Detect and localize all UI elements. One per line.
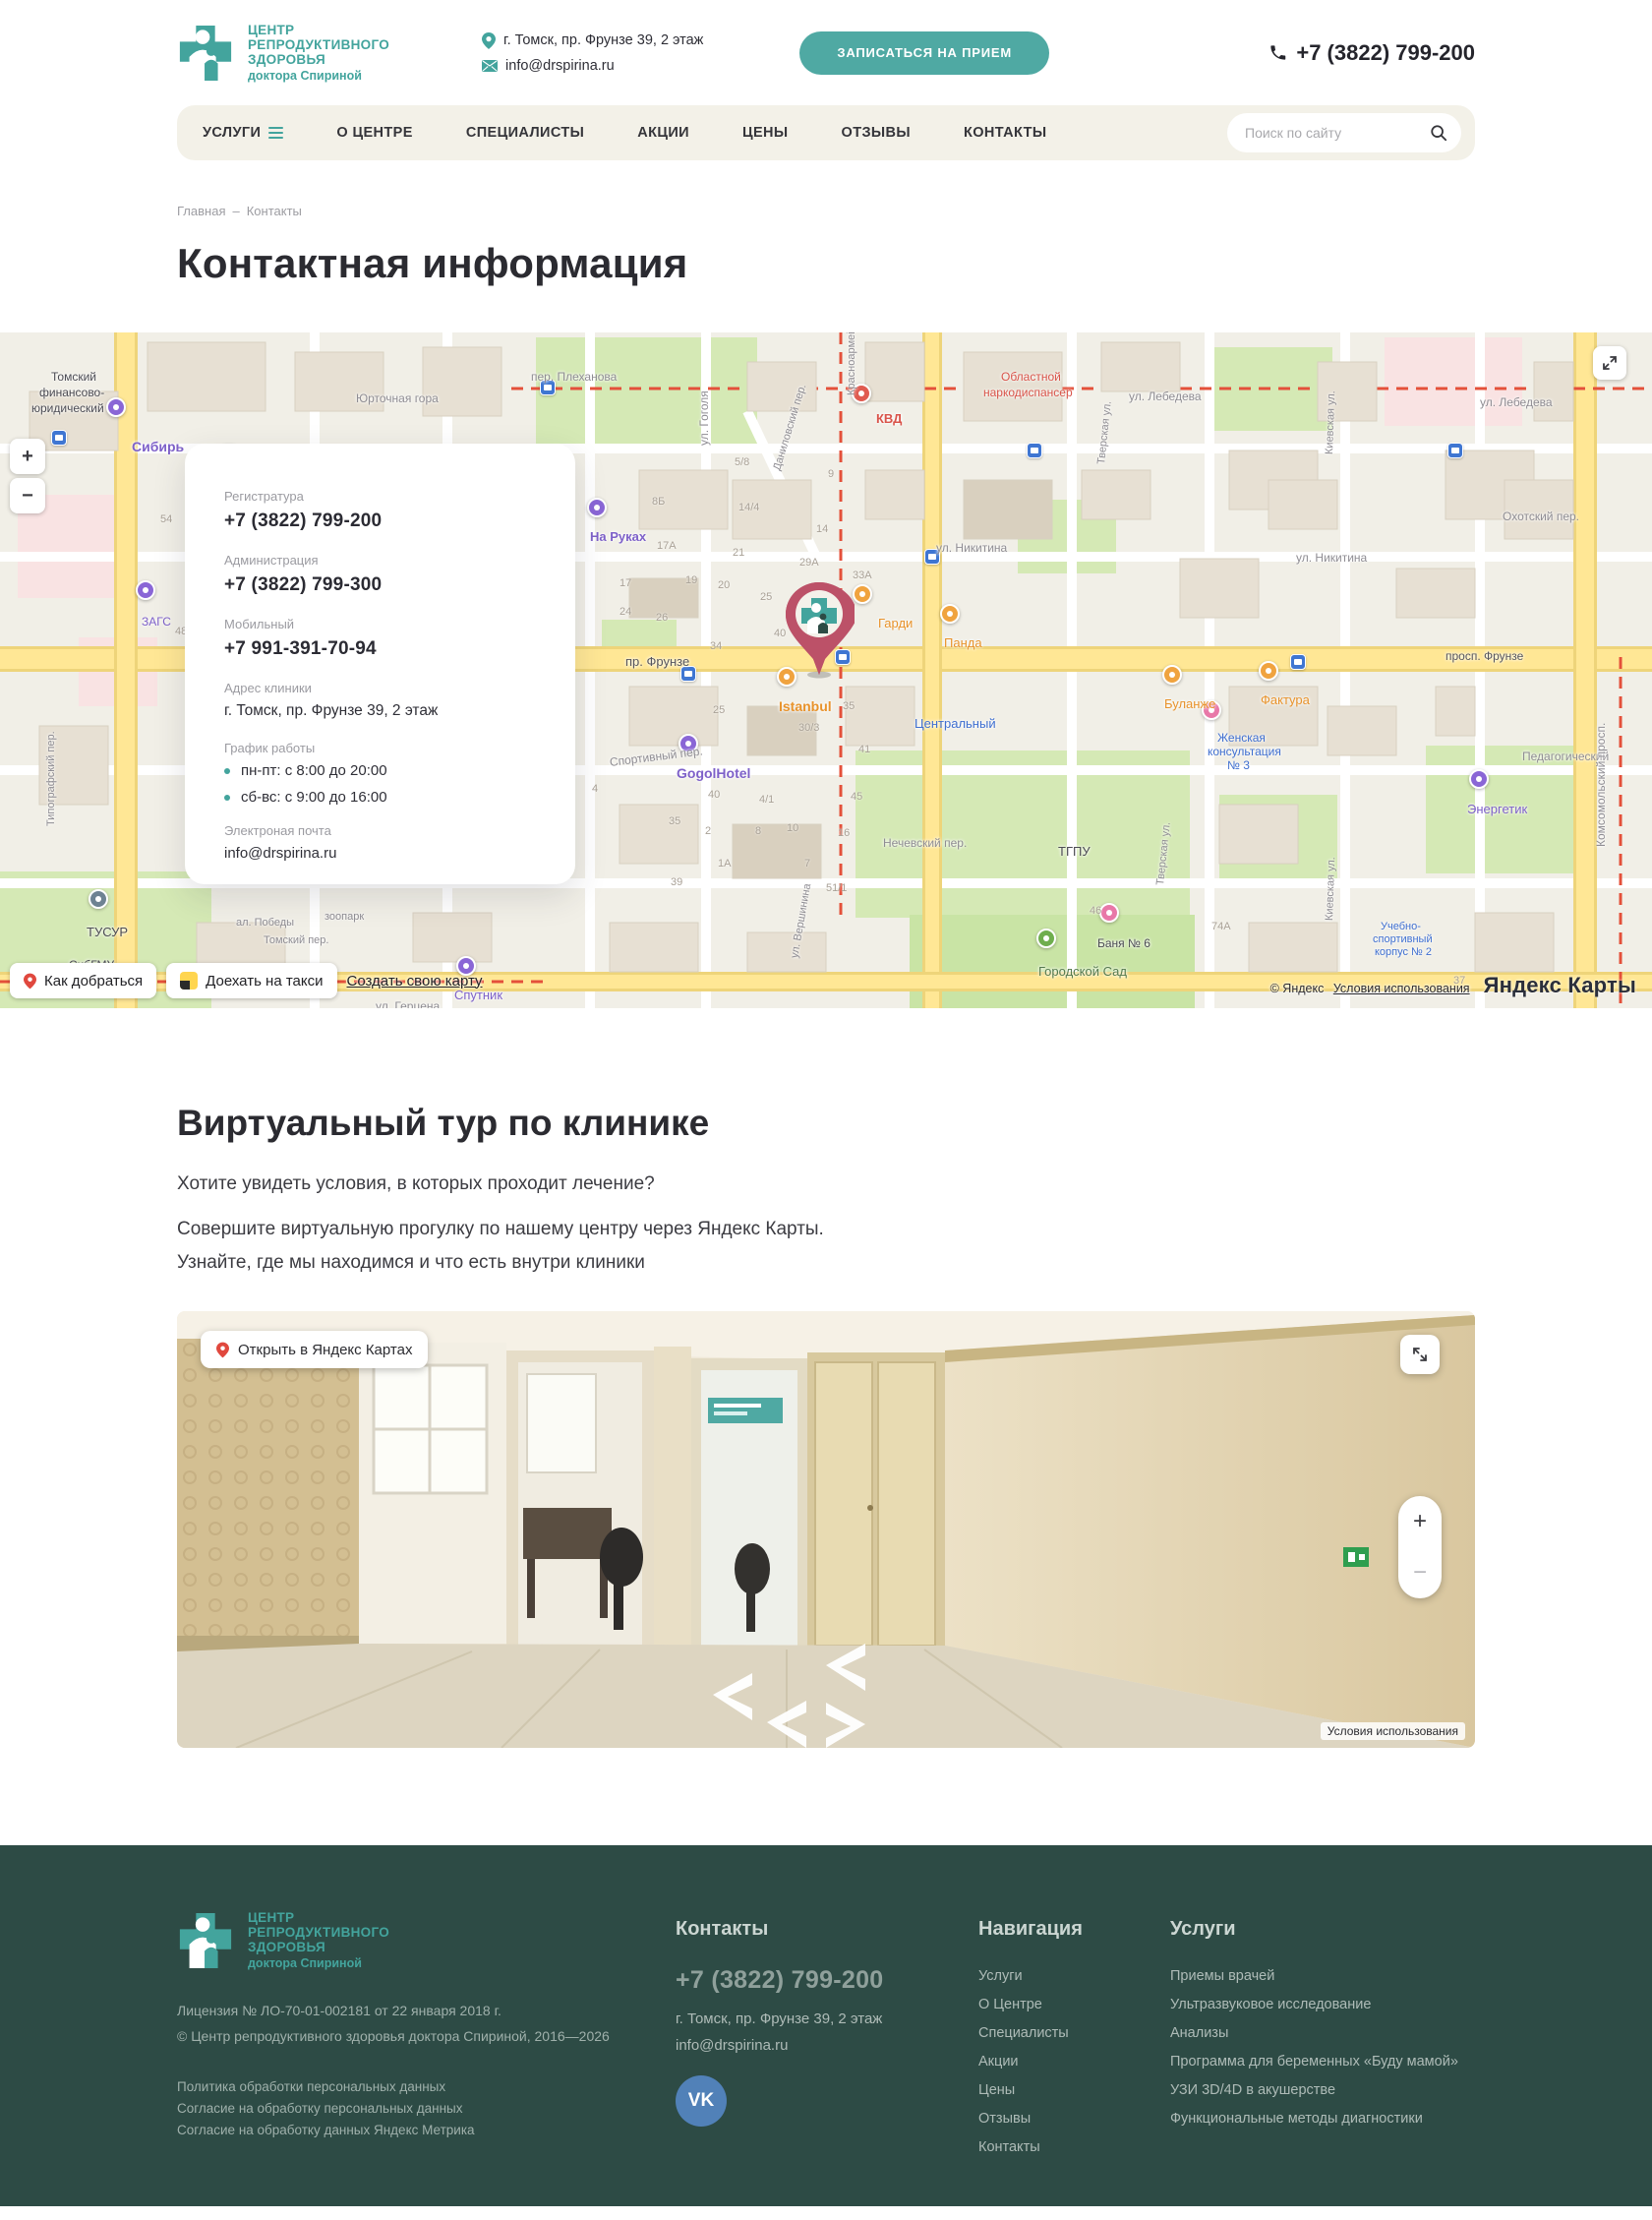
panorama-image — [177, 1311, 1475, 1748]
create-map-link[interactable]: Создать свою карту — [347, 973, 483, 990]
house-number-label: 26 — [656, 612, 668, 624]
nav-item[interactable]: СПЕЦИАЛИСТЫ — [466, 125, 584, 141]
house-number-label: 7 — [804, 858, 810, 870]
house-number-label: 40 — [708, 789, 720, 801]
footer-nav-link[interactable]: О Центре — [978, 1995, 1155, 2014]
logo-tagline: доктора Спириной — [248, 69, 389, 84]
house-number-label: 35 — [843, 700, 855, 712]
clinic-address-value: г. Томск, пр. Фрунзе 39, 2 этаж — [224, 702, 536, 720]
footer-services-list: Приемы врачейУльтразвуковое исследование… — [1170, 1966, 1485, 2129]
header-address: г. Томск, пр. Фрунзе 39, 2 этаж — [482, 32, 703, 49]
footer-contacts-heading: Контакты — [676, 1918, 971, 1941]
house-number-label: 34 — [710, 640, 722, 652]
route-button[interactable]: Как добраться — [10, 963, 156, 998]
nav-item-label: СПЕЦИАЛИСТЫ — [466, 125, 584, 141]
house-number-label: 19 — [685, 574, 697, 586]
footer-service-link[interactable]: Приемы врачей — [1170, 1966, 1485, 1986]
footer-nav-heading: Навигация — [978, 1918, 1155, 1941]
site-search[interactable] — [1227, 113, 1461, 152]
map-terms-link[interactable]: Условия использования — [1333, 982, 1470, 995]
taxi-button[interactable]: Доехать на такси — [166, 963, 336, 998]
house-number-label: 74А — [1211, 921, 1231, 932]
nav-item-label: ЦЕНЫ — [742, 125, 789, 141]
schedule-weekend: сб-вс: с 9:00 до 16:00 — [224, 789, 536, 806]
administration-label: Администрация — [224, 553, 536, 568]
open-in-yandex-maps-button[interactable]: Открыть в Яндекс Картах — [201, 1331, 428, 1368]
nav-item[interactable]: О ЦЕНТРЕ — [336, 125, 412, 141]
footer-nav-list: УслугиО ЦентреСпециалистыАкцииЦеныОтзывы… — [978, 1966, 1155, 2157]
clinic-cross-icon — [177, 23, 234, 84]
header: ЦЕНТР РЕПРОДУКТИВНОГО ЗДОРОВЬЯ доктора С… — [0, 0, 1652, 105]
vk-social-button[interactable]: VK — [676, 2075, 727, 2127]
nav-item[interactable]: ЦЕНЫ — [742, 125, 789, 141]
panorama-zoom-controls: + − — [1398, 1496, 1442, 1598]
nav-item-label: КОНТАКТЫ — [964, 125, 1046, 141]
house-number-label: 35 — [669, 815, 680, 827]
footer-nav-link[interactable]: Специалисты — [978, 2023, 1155, 2043]
breadcrumb-current: Контакты — [247, 204, 302, 218]
expand-diagonal-icon — [1412, 1347, 1428, 1362]
email-label: Электроная почта — [224, 823, 536, 838]
house-number-label: 14/4 — [738, 502, 759, 513]
house-number-label: 45 — [851, 791, 862, 803]
header-phone-text: +7 (3822) 799-200 — [1296, 40, 1475, 66]
house-number-label: 29А — [799, 557, 819, 569]
footer-nav-link[interactable]: Услуги — [978, 1966, 1155, 1986]
house-number-label: 1А — [718, 858, 731, 870]
route-pin-icon — [24, 973, 36, 990]
footer-nav-link[interactable]: Контакты — [978, 2137, 1155, 2157]
logo-line1: ЦЕНТР — [248, 23, 389, 37]
house-number-label: 39 — [671, 876, 682, 888]
footer-logo-line2: РЕПРОДУКТИВНОГО — [248, 1925, 389, 1940]
location-pin-icon — [482, 32, 496, 49]
house-number-label: 4 — [592, 783, 598, 795]
footer-logo-tagline: доктора Спириной — [248, 1956, 389, 1971]
envelope-icon — [482, 60, 498, 72]
nav-item[interactable]: УСЛУГИ — [203, 125, 283, 141]
house-number-label: 30/3 — [798, 722, 819, 734]
footer-service-link[interactable]: Программа для беременных «Буду мамой» — [1170, 2052, 1485, 2071]
house-number-label: 25 — [713, 704, 725, 716]
panorama-zoom-in-button[interactable]: + — [1413, 1510, 1427, 1533]
yandex-map: Томскийфинансово-юридическийЮрточная гор… — [0, 332, 1652, 1008]
menu-icon — [268, 127, 283, 139]
registry-label: Регистратура — [224, 489, 536, 504]
house-number-label: 8 — [755, 825, 761, 837]
house-number-label: 25 — [760, 591, 772, 603]
footer-service-link[interactable]: УЗИ 3D/4D в акушерстве — [1170, 2080, 1485, 2100]
yandex-pin-icon — [216, 1342, 229, 1358]
breadcrumb-home[interactable]: Главная — [177, 204, 225, 218]
main-navigation: УСЛУГИ О ЦЕНТРЕ СПЕЦИАЛИСТЫ АКЦИИ ЦЕНЫ О… — [177, 105, 1475, 160]
map-zoom-controls: + − — [10, 439, 45, 513]
footer-service-link[interactable]: Ультразвуковое исследование — [1170, 1995, 1485, 2014]
house-number-label: 5/8 — [735, 456, 749, 468]
registry-phone[interactable]: +7 (3822) 799-200 — [224, 510, 536, 532]
taxi-button-label: Доехать на такси — [206, 973, 323, 990]
contact-info-card: Регистратура +7 (3822) 799-200 Администр… — [185, 444, 575, 884]
administration-phone[interactable]: +7 (3822) 799-300 — [224, 574, 536, 596]
site-logo[interactable]: ЦЕНТР РЕПРОДУКТИВНОГО ЗДОРОВЬЯ доктора С… — [177, 23, 389, 84]
nav-item-label: ОТЗЫВЫ — [842, 125, 911, 141]
house-number-label: 54 — [160, 513, 172, 525]
nav-item-label: О ЦЕНТРЕ — [336, 125, 412, 141]
house-number-label: 46 — [1090, 905, 1101, 917]
search-icon[interactable] — [1430, 124, 1447, 142]
yandex-maps-logo[interactable]: Яндекс Карты — [1484, 973, 1636, 998]
house-number-label: 10 — [787, 822, 798, 834]
house-number-label: 4/1 — [759, 794, 774, 806]
house-number-label: 51/1 — [826, 882, 847, 894]
schedule-label: График работы — [224, 741, 536, 755]
house-number-label: 14 — [816, 523, 828, 535]
schedule-list: пн-пт: с 8:00 до 20:00 сб-вс: с 9:00 до … — [224, 762, 536, 806]
mobile-phone[interactable]: +7 991-391-70-94 — [224, 638, 536, 660]
house-number-label: 41 — [858, 744, 870, 755]
house-number-label: 33А — [853, 570, 872, 581]
house-number-label: 20 — [718, 579, 730, 591]
yandex-copyright-text: © Яндекс — [1270, 982, 1325, 995]
header-email-text[interactable]: info@drspirina.ru — [505, 58, 615, 74]
house-number-label: 9 — [828, 468, 834, 480]
footer-services-heading: Услуги — [1170, 1918, 1485, 1941]
search-input[interactable] — [1245, 125, 1430, 141]
phone-icon — [1268, 43, 1287, 62]
panorama-terms-link[interactable]: Условия использования — [1321, 1722, 1465, 1740]
taxi-icon — [180, 972, 198, 990]
house-number-label: 8Б — [652, 496, 665, 508]
tour-intro: Хотите увидеть условия, в которых проход… — [177, 1173, 1475, 1195]
legal-links: Политика обработки персональных данныхСо… — [177, 2079, 639, 2137]
map-zoom-in-button[interactable]: + — [10, 439, 45, 474]
footer-nav-link[interactable]: Акции — [978, 2052, 1155, 2071]
footer-logo-line1: ЦЕНТР — [248, 1910, 389, 1925]
footer-email[interactable]: info@drspirina.ru — [676, 2037, 971, 2054]
book-appointment-button[interactable]: ЗАПИСАТЬСЯ НА ПРИЕМ — [799, 31, 1049, 75]
legal-link[interactable]: Согласие на обработку персональных данны… — [177, 2101, 639, 2116]
nav-item-label: УСЛУГИ — [203, 125, 261, 141]
nav-item[interactable]: ОТЗЫВЫ — [842, 125, 911, 141]
route-button-label: Как добраться — [44, 973, 143, 990]
license-text: Лицензия № ЛО-70-01-002181 от 22 января … — [177, 2003, 639, 2018]
breadcrumb: Главная – Контакты — [177, 204, 1475, 218]
logo-line3: ЗДОРОВЬЯ — [248, 52, 389, 67]
legal-link[interactable]: Согласие на обработку данных Яндекс Метр… — [177, 2123, 639, 2137]
tour-description: Совершите виртуальную прогулку по нашему… — [177, 1213, 1475, 1280]
email-value[interactable]: info@drspirina.ru — [224, 845, 536, 862]
house-number-label: 2 — [705, 825, 711, 837]
header-phone[interactable]: +7 (3822) 799-200 — [1268, 40, 1475, 66]
header-email[interactable]: info@drspirina.ru — [482, 58, 703, 74]
header-address-text: г. Томск, пр. Фрунзе 39, 2 этаж — [503, 32, 703, 48]
house-number-label: 16 — [838, 827, 850, 839]
nav-item[interactable]: КОНТАКТЫ — [964, 125, 1046, 141]
house-number-label: 17А — [657, 540, 677, 552]
map-fullscreen-button[interactable] — [1593, 346, 1626, 380]
footer-nav-link[interactable]: Отзывы — [978, 2109, 1155, 2129]
mobile-label: Мобильный — [224, 617, 536, 631]
map-zoom-out-button[interactable]: − — [10, 478, 45, 513]
tour-title: Виртуальный тур по клинике — [177, 1103, 1475, 1144]
house-number-label: 17 — [619, 577, 631, 589]
clinic-map-pin[interactable] — [784, 580, 855, 679]
logo-line2: РЕПРОДУКТИВНОГО — [248, 37, 389, 52]
legal-link[interactable]: Политика обработки персональных данных — [177, 2079, 639, 2094]
clinic-address-label: Адрес клиники — [224, 681, 536, 695]
map-attribution: © Яндекс Условия использования Яндекс Ка… — [1270, 973, 1636, 998]
open-in-yandex-maps-label: Открыть в Яндекс Картах — [238, 1342, 412, 1358]
map-copyright: © Яндекс Условия использования — [1270, 982, 1470, 995]
footer-phone[interactable]: +7 (3822) 799-200 — [676, 1966, 971, 1995]
breadcrumb-separator: – — [232, 204, 239, 218]
tour-description-line1: Совершите виртуальную прогулку по нашему… — [177, 1219, 824, 1239]
footer-nav-link[interactable]: Цены — [978, 2080, 1155, 2100]
panorama-viewer[interactable]: Открыть в Яндекс Картах + − Условия испо… — [177, 1311, 1475, 1748]
nav-item-label: АКЦИИ — [637, 125, 689, 141]
panorama-fullscreen-button[interactable] — [1400, 1335, 1440, 1374]
footer-logo[interactable]: ЦЕНТР РЕПРОДУКТИВНОГО ЗДОРОВЬЯ доктора С… — [177, 1910, 639, 1971]
footer-service-link[interactable]: Анализы — [1170, 2023, 1485, 2043]
expand-icon — [1602, 355, 1618, 371]
footer-logo-line3: ЗДОРОВЬЯ — [248, 1940, 389, 1954]
footer-service-link[interactable]: Функциональные методы диагностики — [1170, 2109, 1485, 2129]
clinic-cross-icon-footer — [177, 1910, 234, 1971]
footer-address: г. Томск, пр. Фрунзе 39, 2 этаж — [676, 2010, 971, 2027]
schedule-weekdays: пн-пт: с 8:00 до 20:00 — [224, 762, 536, 779]
tour-description-line2: Узнайте, где мы находимся и что есть вну… — [177, 1252, 645, 1273]
nav-item[interactable]: АКЦИИ — [637, 125, 689, 141]
copyright-text: © Центр репродуктивного здоровья доктора… — [177, 2028, 639, 2044]
footer: ЦЕНТР РЕПРОДУКТИВНОГО ЗДОРОВЬЯ доктора С… — [0, 1845, 1652, 2206]
panorama-zoom-out-button[interactable]: − — [1413, 1561, 1427, 1585]
house-number-label: 24 — [619, 606, 631, 618]
house-number-label: 21 — [733, 547, 744, 559]
page-title: Контактная информация — [177, 240, 1475, 287]
